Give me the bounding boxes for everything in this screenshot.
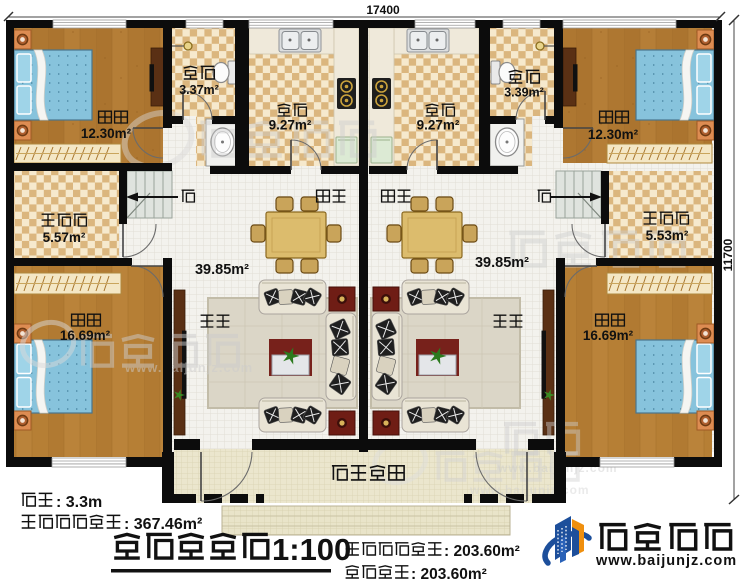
- svg-text:16.69m²: 16.69m²: [583, 328, 634, 343]
- svg-text:9.27m²: 9.27m²: [417, 118, 460, 133]
- svg-text:: 203.60m²: : 203.60m²: [444, 543, 520, 560]
- svg-text:5.53m²: 5.53m²: [646, 228, 689, 243]
- svg-text:12.30m²: 12.30m²: [588, 127, 639, 142]
- svg-text:9.27m²: 9.27m²: [269, 118, 312, 133]
- svg-text:3.37m²: 3.37m²: [179, 83, 219, 97]
- svg-text:5.57m²: 5.57m²: [43, 230, 86, 245]
- svg-text:www.baijunjz.com: www.baijunjz.com: [124, 360, 253, 375]
- svg-text:: 3.3m: : 3.3m: [56, 494, 102, 511]
- svg-text:17400: 17400: [366, 3, 400, 17]
- svg-text:1:100: 1:100: [272, 532, 351, 567]
- svg-text:16.69m²: 16.69m²: [60, 328, 111, 343]
- svg-text:11700: 11700: [721, 238, 735, 271]
- svg-text:39.85m²: 39.85m²: [195, 262, 249, 278]
- svg-text:3.39m²: 3.39m²: [504, 86, 544, 100]
- svg-text:: 367.46m²: : 367.46m²: [124, 516, 202, 533]
- svg-text:12.30m²: 12.30m²: [81, 126, 132, 141]
- svg-text:: 203.60m²: : 203.60m²: [411, 566, 487, 583]
- svg-text:www.baijunjz.com: www.baijunjz.com: [595, 553, 737, 569]
- svg-text:39.85m²: 39.85m²: [475, 255, 529, 271]
